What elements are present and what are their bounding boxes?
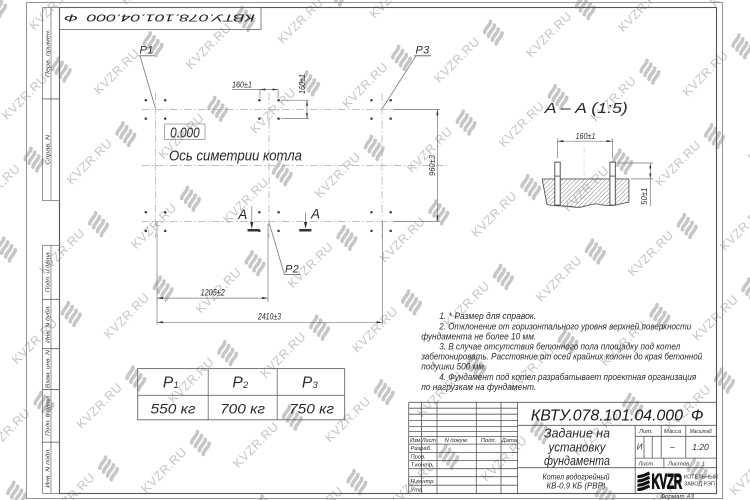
svg-text:Инв. N дубл.: Инв. N дубл. [45,305,51,343]
svg-text:Утв.: Утв. [410,487,424,493]
svg-text:Разраб.: Разраб. [411,446,432,452]
svg-text:750 кг: 750 кг [289,401,334,417]
svg-text:Лит.: Лит. [638,429,653,435]
svg-text:160±1: 160±1 [576,132,596,141]
svg-text:КВ-0,9 КБ (РВР): КВ-0,9 КБ (РВР) [547,482,606,491]
svg-text:Н.контр.: Н.контр. [411,479,436,485]
svg-text:Лист: Лист [637,462,653,468]
svg-text:P1: P1 [139,45,153,57]
svg-text:A – A (1:5): A – A (1:5) [544,100,628,117]
svg-text:Формат А3: Формат А3 [660,493,694,500]
svg-text:Масса: Масса [664,429,682,435]
svg-text:Листов: Листов [667,462,689,468]
svg-text:1: 1 [702,462,705,468]
svg-text:Ось симетрии котла: Ось симетрии котла [169,148,302,164]
svg-text:550 кг: 550 кг [151,401,196,417]
svg-text:Пров.: Пров. [411,454,426,460]
svg-text:КОТЕЛЬНЫЙ: КОТЕЛЬНЫЙ [684,473,718,481]
svg-text:960±3: 960±3 [427,155,437,176]
svg-text:50±1: 50±1 [639,188,649,205]
svg-text:1:20: 1:20 [692,442,709,452]
svg-text:Взам. инв. N: Взам. инв. N [45,350,51,388]
svg-text:Дата: Дата [501,438,518,444]
svg-text:Изм.Лист: Изм.Лист [410,438,436,444]
svg-text:–: – [669,443,675,452]
svg-text:Т.контр.: Т.контр. [411,463,434,469]
svg-text:по нагрузкам на фундамент.: по нагрузкам на фундамент. [421,381,536,392]
svg-text:P2: P2 [285,263,299,275]
svg-text:KVZR: KVZR [652,470,682,494]
svg-text:ЗАВОД РЭП: ЗАВОД РЭП [684,482,715,488]
svg-text:Масштаб: Масштаб [690,429,713,435]
svg-text:Подп.: Подп. [481,438,496,444]
svg-text:Задание на: Задание на [544,427,610,441]
svg-text:Инв. N подл.: Инв. N подл. [45,448,51,488]
svg-text:Подп. и дата: Подп. и дата [45,252,51,292]
svg-text:Подп. и дата: Подп. и дата [45,396,51,436]
svg-text:Котел водогрейный: Котел водогрейный [543,472,610,481]
svg-text:1205±2: 1205±2 [201,288,225,298]
svg-text:700 кг: 700 кг [220,401,265,417]
svg-text:A: A [310,207,320,222]
svg-text:И: И [637,443,643,452]
svg-text:Перв. примен.: Перв. примен. [45,29,51,77]
svg-text:установку: установку [548,440,607,454]
svg-text:A: A [237,207,247,222]
svg-text:160±1: 160±1 [232,81,252,90]
svg-text:Справ. N: Справ. N [45,135,51,165]
svg-text:2410±3: 2410±3 [257,312,281,322]
svg-text:КВТУ.078.101.04.000 Ф: КВТУ.078.101.04.000 Ф [64,11,255,23]
svg-text:КВТУ.078.101.04.000 Ф: КВТУ.078.101.04.000 Ф [531,407,704,424]
svg-text:160±1: 160±1 [298,74,307,94]
svg-text:N докум.: N докум. [445,438,469,444]
svg-text:0.000: 0.000 [170,125,200,142]
svg-text:фундамента: фундамента [544,454,610,468]
svg-text:P3: P3 [415,45,430,57]
